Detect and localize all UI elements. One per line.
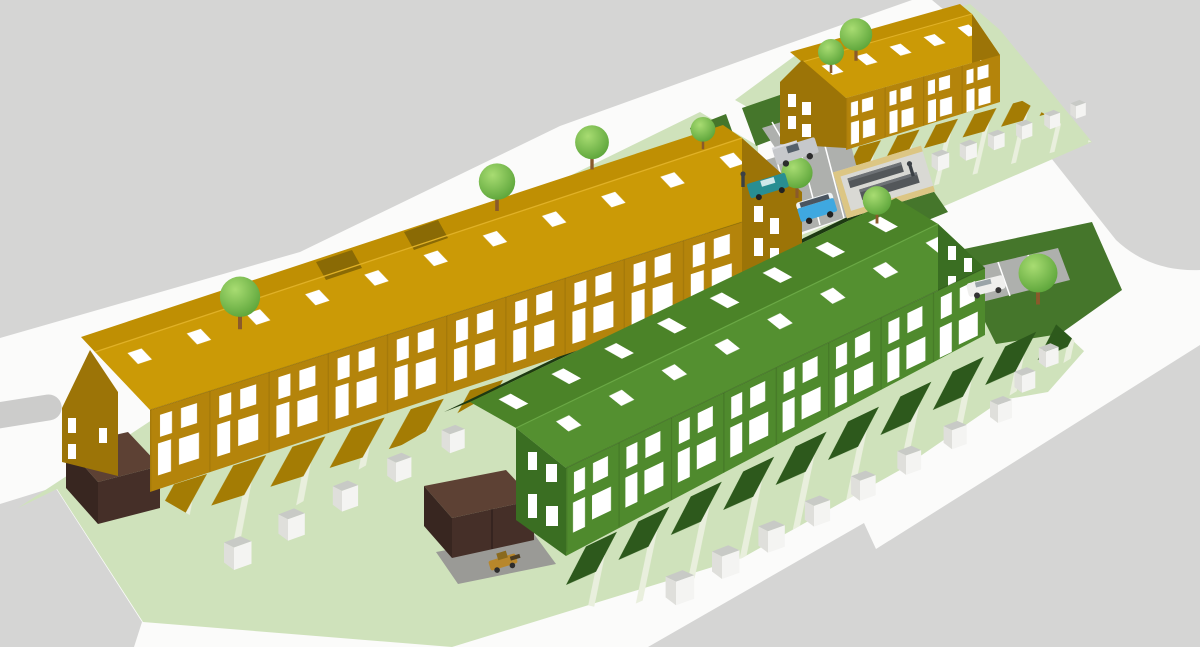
scene-canvas [0, 0, 1200, 647]
site-plan-render [0, 0, 1200, 647]
